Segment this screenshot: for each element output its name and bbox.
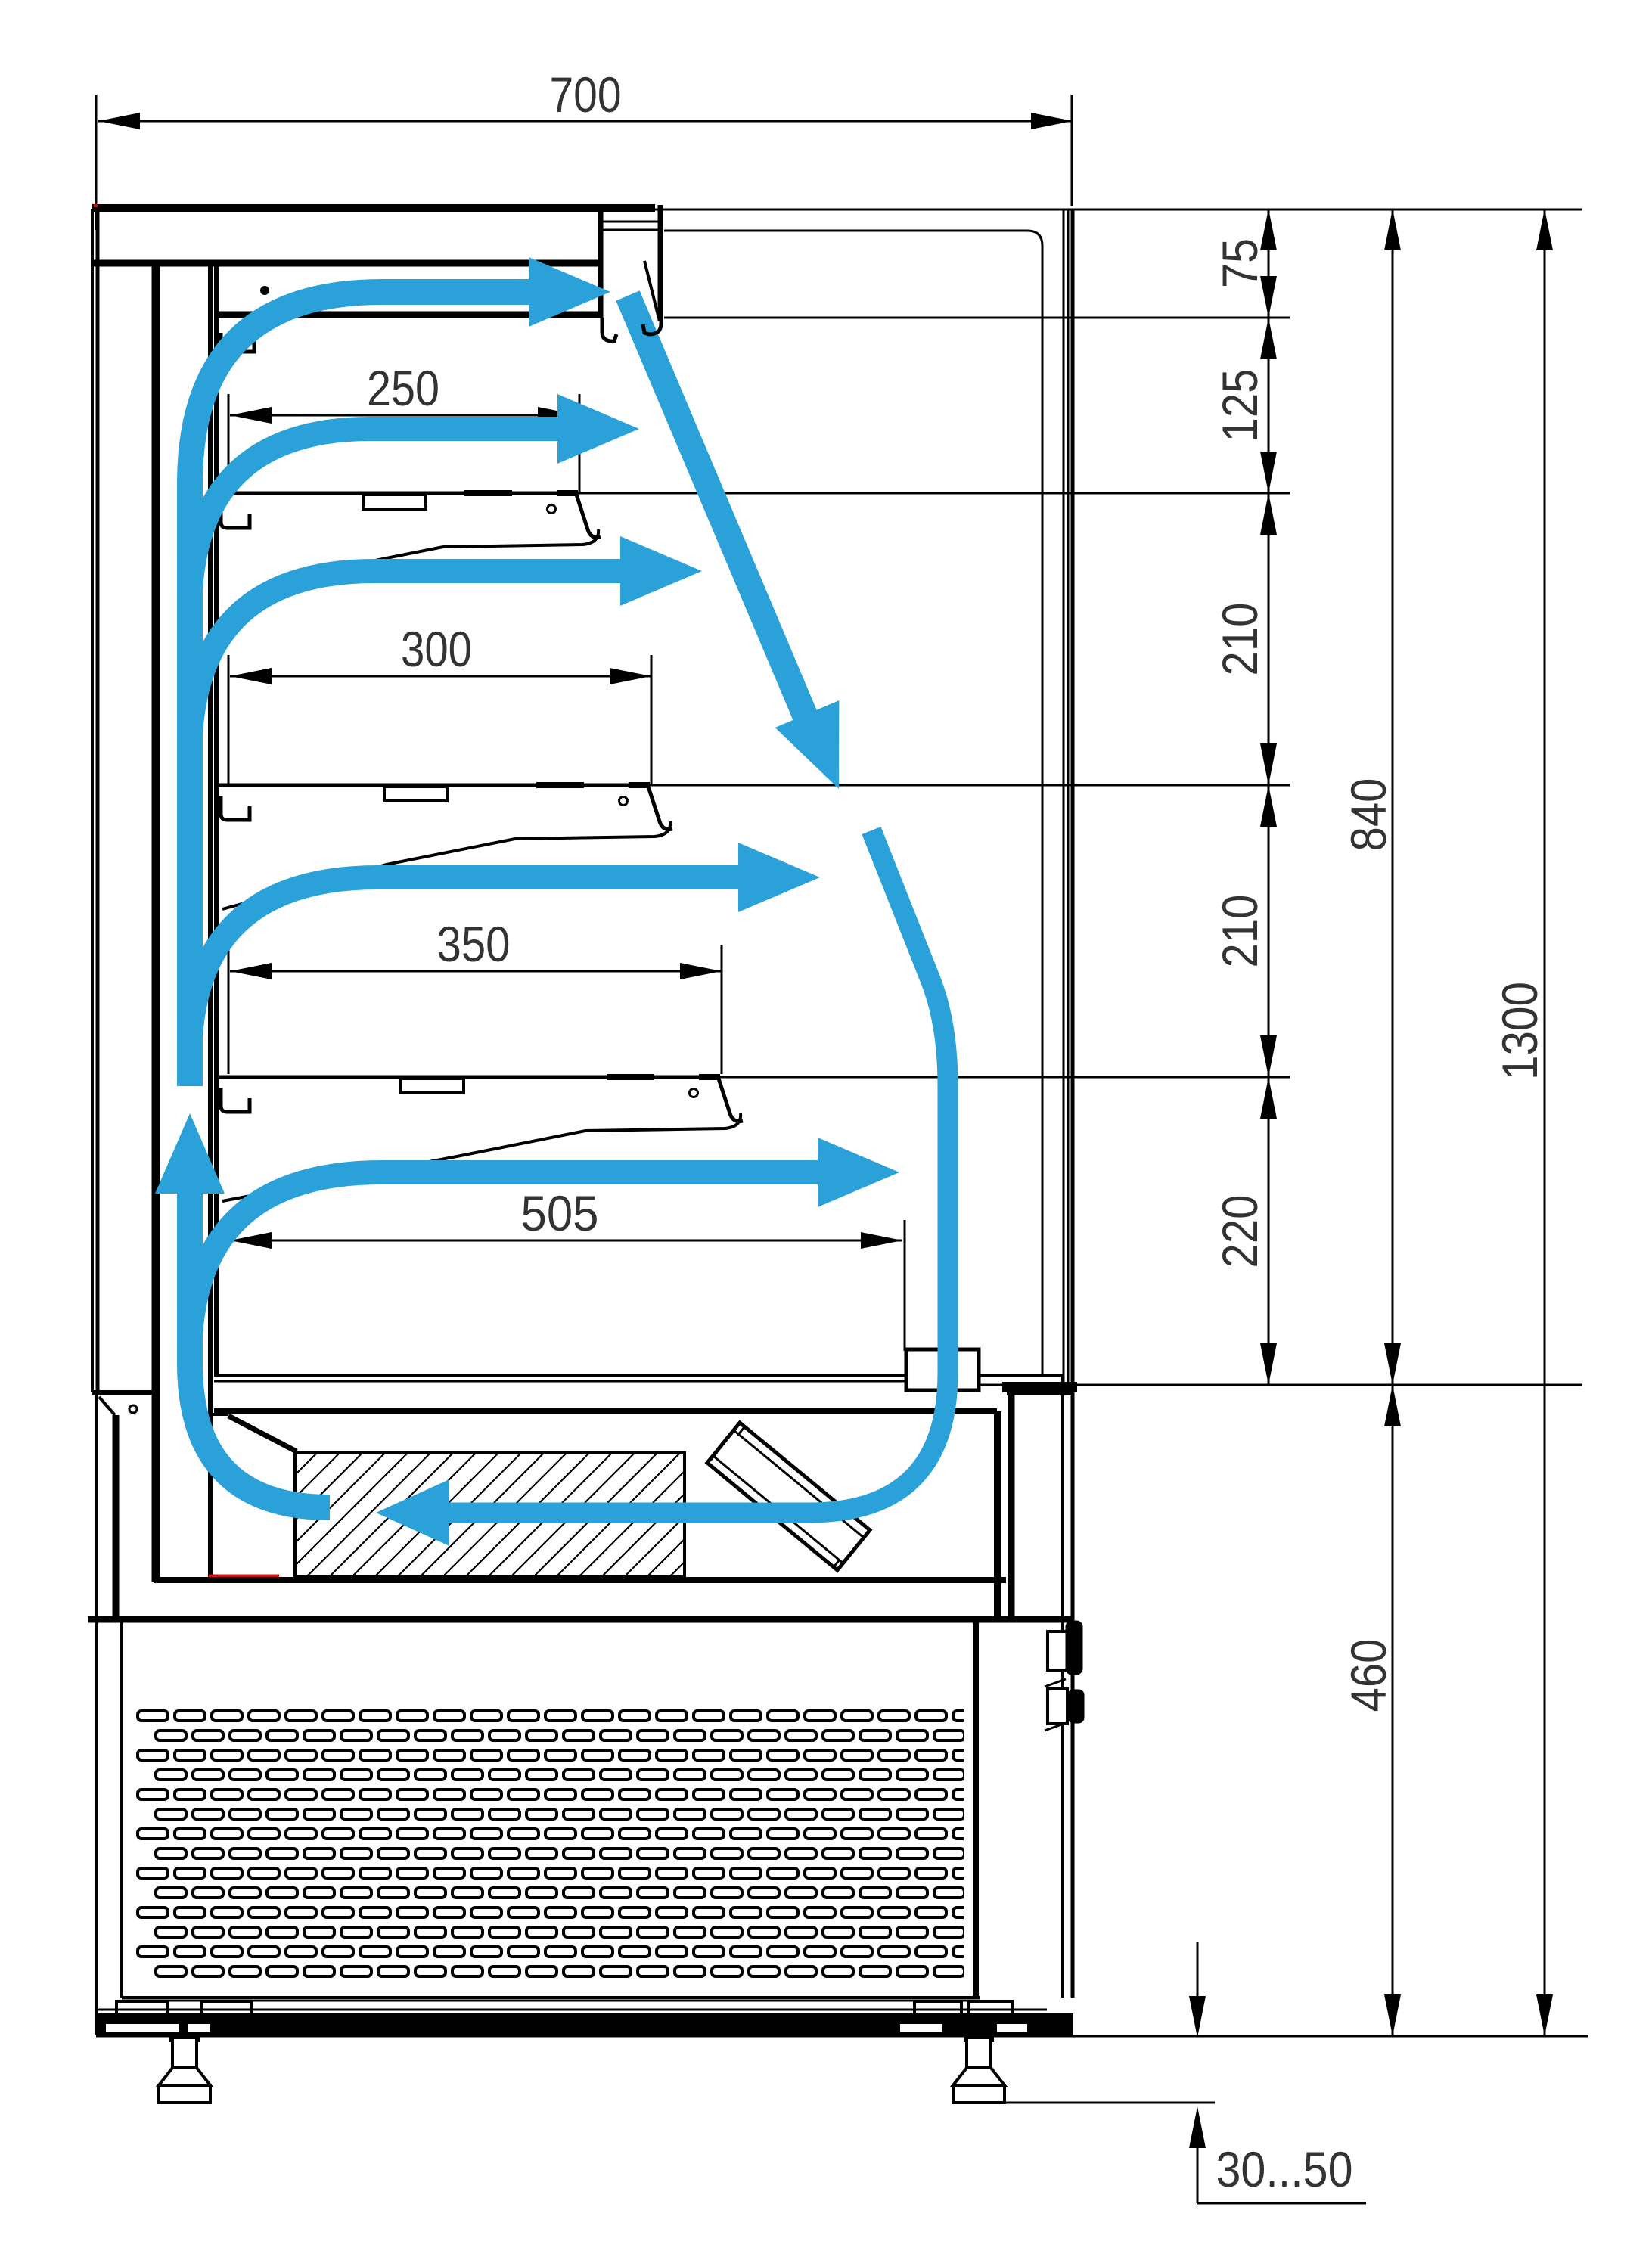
svg-text:250: 250 (367, 360, 439, 416)
svg-text:125: 125 (1212, 369, 1268, 442)
svg-text:840: 840 (1340, 778, 1396, 852)
svg-text:220: 220 (1212, 1195, 1268, 1268)
svg-text:210: 210 (1212, 603, 1268, 676)
svg-text:210: 210 (1212, 895, 1268, 968)
svg-text:1300: 1300 (1492, 982, 1548, 1080)
svg-text:30...50: 30...50 (1216, 2141, 1353, 2197)
svg-text:350: 350 (437, 916, 511, 972)
svg-text:700: 700 (550, 67, 622, 123)
svg-text:460: 460 (1340, 1639, 1396, 1712)
svg-text:300: 300 (401, 621, 472, 677)
svg-text:505: 505 (521, 1185, 599, 1241)
svg-text:75: 75 (1212, 238, 1268, 288)
